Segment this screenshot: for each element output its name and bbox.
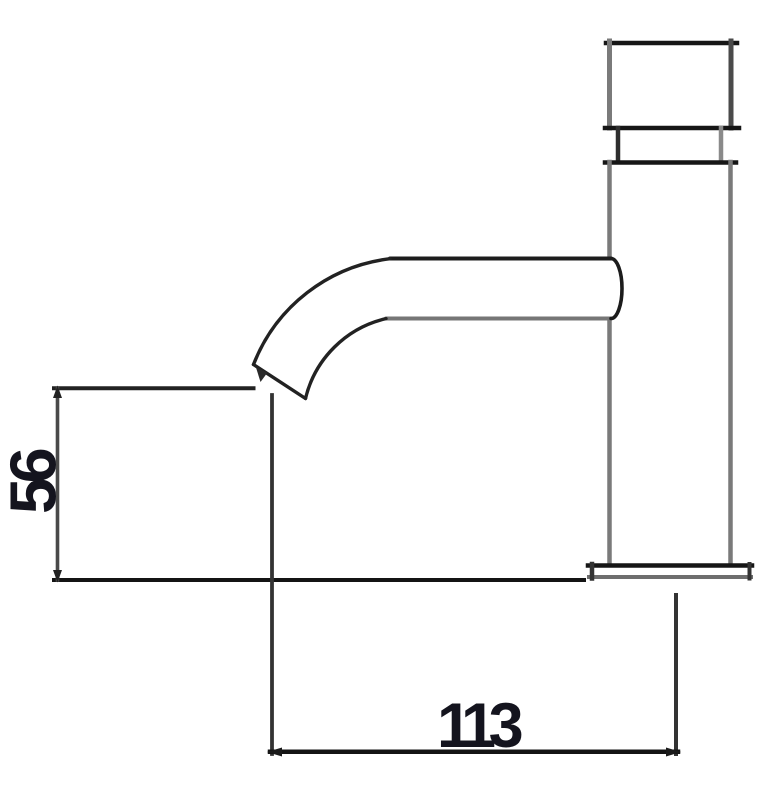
svg-text:113: 113 [437,691,522,761]
svg-text:56: 56 [0,449,70,514]
